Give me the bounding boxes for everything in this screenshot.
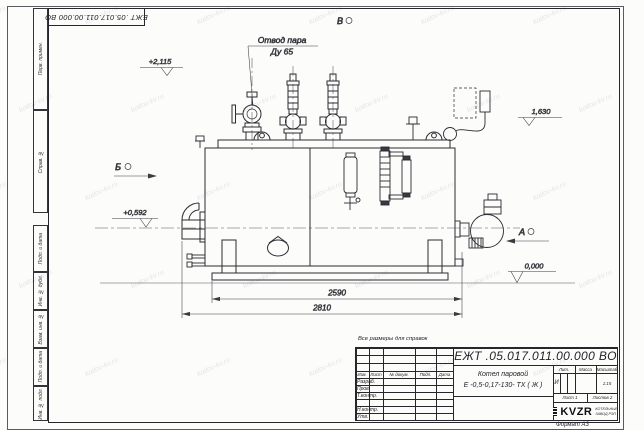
top-deck: [218, 140, 450, 148]
level-mark-upper-right: 1,630: [518, 107, 562, 126]
svg-text:В: В: [337, 16, 343, 26]
dimension-skid: 2590: [212, 252, 462, 303]
svg-text:А: А: [518, 227, 525, 237]
svg-text:Отвод пара: Отвод пара: [258, 35, 307, 45]
tb-header-izm: Изм.: [355, 371, 369, 378]
tb-lit-value: И: [553, 373, 560, 393]
drawing-sheet: kotlov-kv.rukotlov-kv.rukotlov-kv.rukotl…: [0, 0, 644, 430]
centerlines: [95, 58, 575, 283]
kvzr-logo-text: KVZR: [560, 406, 592, 418]
view-label-right: А: [506, 227, 549, 244]
view-label-top: В: [337, 16, 352, 26]
lifting-lug-right: [426, 132, 442, 140]
title-block: Изм. Лист № докум. Подп. Дата Разраб. Пр…: [355, 347, 618, 421]
tb-doc-number: ЕЖТ .05.017.011.00.000 ВО: [453, 347, 618, 365]
reference-note: Все размеры для справок: [358, 336, 427, 342]
svg-text:+0,592: +0,592: [123, 208, 147, 217]
support-legs: [212, 240, 448, 280]
svg-text:1,630: 1,630: [532, 107, 552, 116]
tb-row-prov: Пров.: [357, 385, 383, 392]
format-note: Формат А3: [556, 422, 589, 428]
tb-header-podp: Подп.: [415, 371, 436, 378]
tb-row-blank: [357, 399, 383, 406]
svg-text:Ду 65: Ду 65: [270, 47, 293, 57]
tb-company-cell: KVZR КОТЕЛЬНЫЙ ЗАВОД РЭП: [553, 402, 618, 421]
drain-stubs: [187, 254, 205, 267]
tap-valve: [195, 136, 205, 148]
tb-sheet-number: Лист 1: [553, 393, 587, 402]
lifting-lug-left: [254, 132, 270, 140]
gauge-glass: [380, 147, 411, 205]
tb-product-name: Котел паровой Е -0,5-0,17-130- ТХ ( Ж ): [453, 365, 553, 396]
tb-row-utv: Утв.: [357, 413, 383, 420]
level-electrode: [406, 88, 490, 141]
svg-text:2810: 2810: [312, 304, 331, 313]
product-name-line1: Котел паровой: [478, 370, 528, 381]
kvzr-logo-icon: [553, 407, 557, 416]
boiler-body: [205, 140, 455, 266]
level-indicator: [344, 153, 360, 210]
callout-steam-outlet: Отвод пара Ду 65: [248, 35, 318, 106]
tb-row-tkontr: Т.контр.: [357, 392, 383, 399]
tb-lit-header: Лит.: [553, 365, 575, 373]
svg-text:Б: Б: [115, 162, 121, 172]
tb-scale-value: 1:15: [596, 373, 618, 393]
level-mark-ground: 0,000: [508, 262, 556, 283]
skid-frame: [212, 273, 448, 280]
steam-valve: [232, 92, 261, 140]
manhole: [268, 237, 289, 257]
svg-text:2590: 2590: [327, 289, 346, 298]
product-name-line2: Е -0,5-0,17-130- ТХ ( Ж ): [464, 381, 543, 392]
tb-header-docnum: № докум.: [383, 371, 415, 378]
level-mark-burner: +0,592: [112, 208, 158, 227]
tb-header-list: Лист: [369, 371, 383, 378]
tb-header-data: Дата: [436, 371, 453, 378]
tb-sheets-total: Листов 2: [587, 393, 618, 402]
view-label-left: Б: [114, 162, 157, 179]
svg-text:0,000: 0,000: [525, 262, 545, 271]
burner: [182, 203, 205, 242]
tb-row-nkontr: Н.контр.: [357, 406, 383, 413]
level-mark-top: +2,115: [140, 57, 183, 76]
tb-scale-header: Масштаб: [596, 365, 618, 373]
kvzr-company-name: КОТЕЛЬНЫЙ ЗАВОД РЭП: [595, 407, 618, 416]
tb-row-razrab: Разраб.: [357, 378, 383, 385]
ghost-outline: [454, 88, 476, 118]
tb-mass-header: Масса: [575, 365, 596, 373]
svg-text:+2,115: +2,115: [149, 57, 172, 66]
